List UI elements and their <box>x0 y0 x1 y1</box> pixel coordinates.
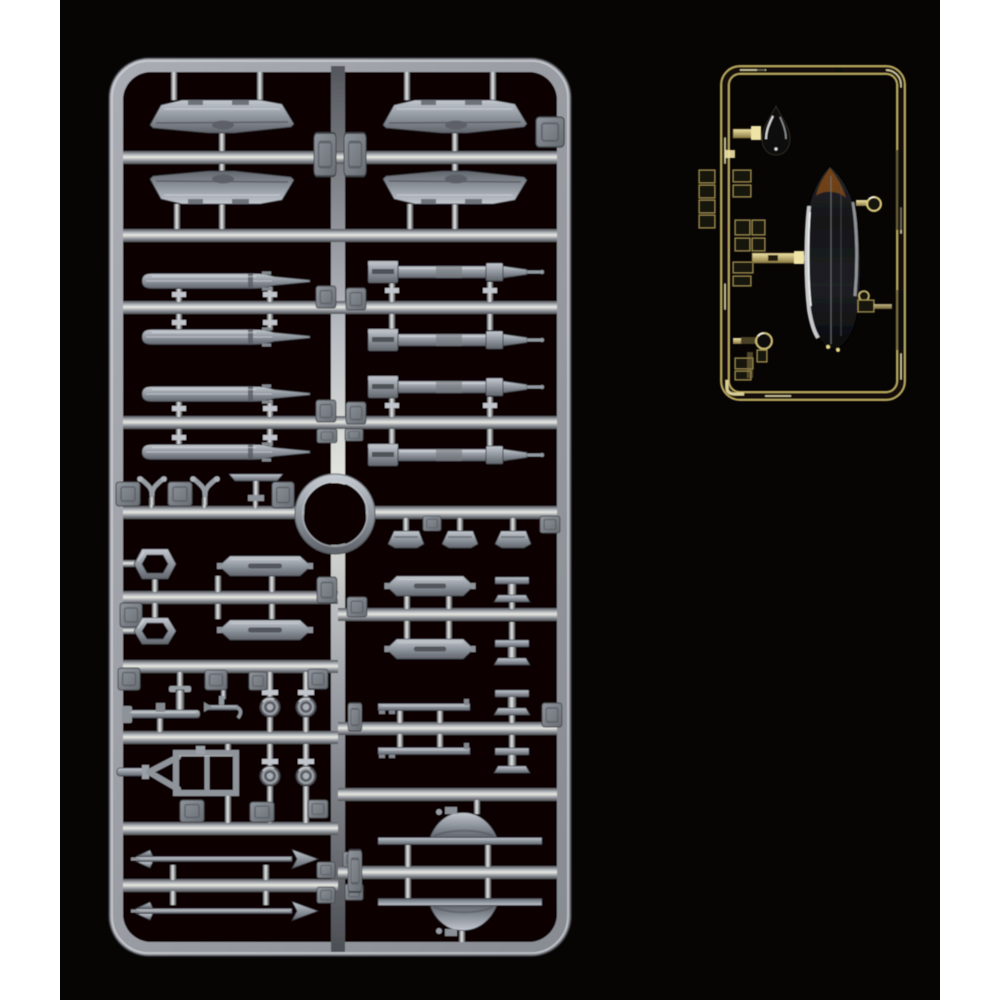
ejector-tab <box>250 802 274 822</box>
ejector-tab <box>317 862 335 878</box>
ejector-tab <box>536 117 564 147</box>
ejector-tab <box>542 703 562 727</box>
ejector-tab <box>346 402 366 424</box>
ejector-tab <box>317 577 337 603</box>
wheel <box>260 766 280 786</box>
photo-canvas <box>0 0 1000 1000</box>
ring-collar <box>295 474 375 554</box>
wing-pylon <box>217 556 313 576</box>
ejector-tab <box>272 482 294 508</box>
ejector-tab <box>118 668 140 690</box>
wheel <box>296 766 316 786</box>
product-photo: Product photograph of injection-molded m… <box>0 0 1000 1000</box>
upper-wing-half <box>383 100 527 133</box>
wing-pylon <box>384 576 475 596</box>
lower-wing-half <box>383 171 527 204</box>
wing-pylon <box>384 639 475 659</box>
ejector-tab <box>116 482 140 506</box>
ejector-tab <box>347 597 367 617</box>
ejector-tab <box>316 286 336 308</box>
ejector-tab <box>317 429 337 443</box>
upper-wing-half <box>150 100 294 133</box>
ejector-tab <box>249 672 267 690</box>
ejector-tab <box>316 400 336 422</box>
ejector-tab <box>348 703 362 731</box>
ejector-tab <box>423 516 441 531</box>
ejector-tab <box>345 429 363 441</box>
ejector-tab <box>344 133 366 176</box>
wheel <box>296 697 316 717</box>
wheel <box>260 697 280 717</box>
ejector-tab <box>540 516 560 533</box>
ejector-tab <box>205 670 227 690</box>
ejector-tab <box>348 850 362 892</box>
ejector-tab <box>314 133 336 176</box>
ejector-tab <box>308 669 328 689</box>
lower-wing-half <box>150 171 294 204</box>
ejector-tab <box>308 800 328 818</box>
ejector-tab <box>317 887 335 903</box>
ejector-tab <box>180 800 204 822</box>
gray-sprue <box>109 58 571 956</box>
ejector-tab <box>168 482 192 506</box>
ejector-tab <box>346 288 366 310</box>
round-lens-right <box>867 197 881 211</box>
wing-pylon <box>217 620 313 640</box>
